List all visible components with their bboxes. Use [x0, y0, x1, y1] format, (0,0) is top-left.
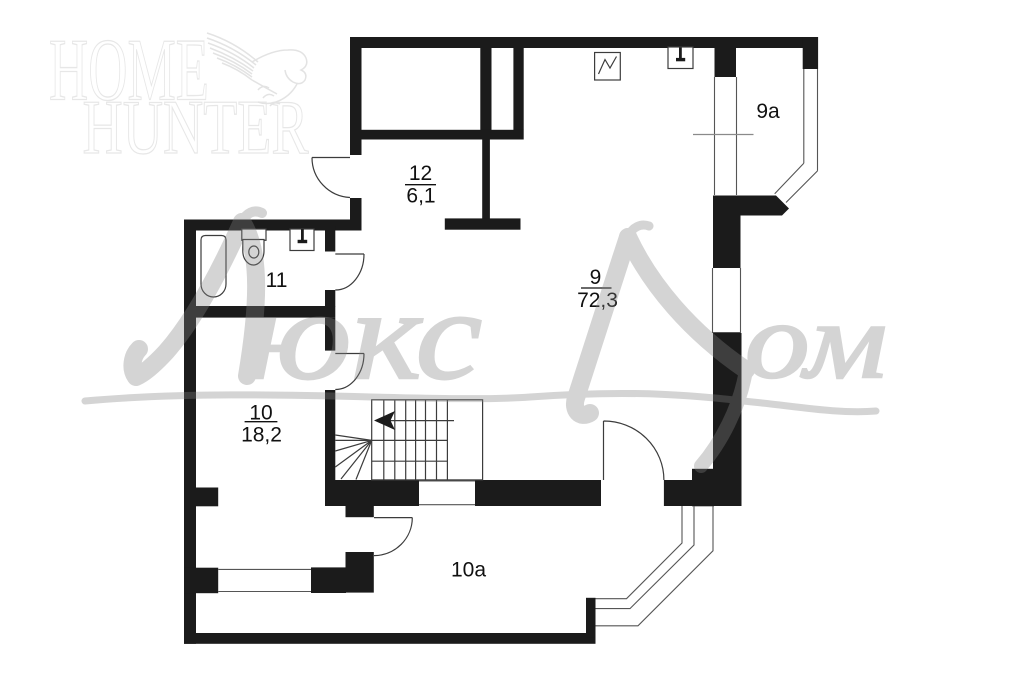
svg-text:юкс: юкс	[246, 264, 482, 406]
svg-text:ом: ом	[745, 282, 887, 401]
